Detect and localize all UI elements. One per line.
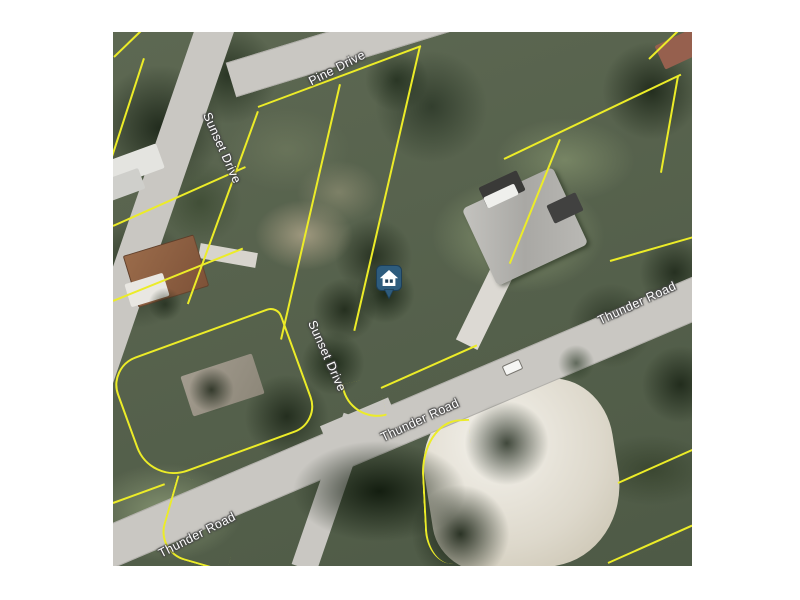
listing-photo-canvas: Pine Drive Sunset Drive Sunset Drive Thu… [0, 0, 800, 600]
aerial-map[interactable]: Pine Drive Sunset Drive Sunset Drive Thu… [113, 32, 692, 566]
home-marker-icon [375, 264, 403, 300]
home-marker-pin[interactable] [375, 264, 403, 300]
